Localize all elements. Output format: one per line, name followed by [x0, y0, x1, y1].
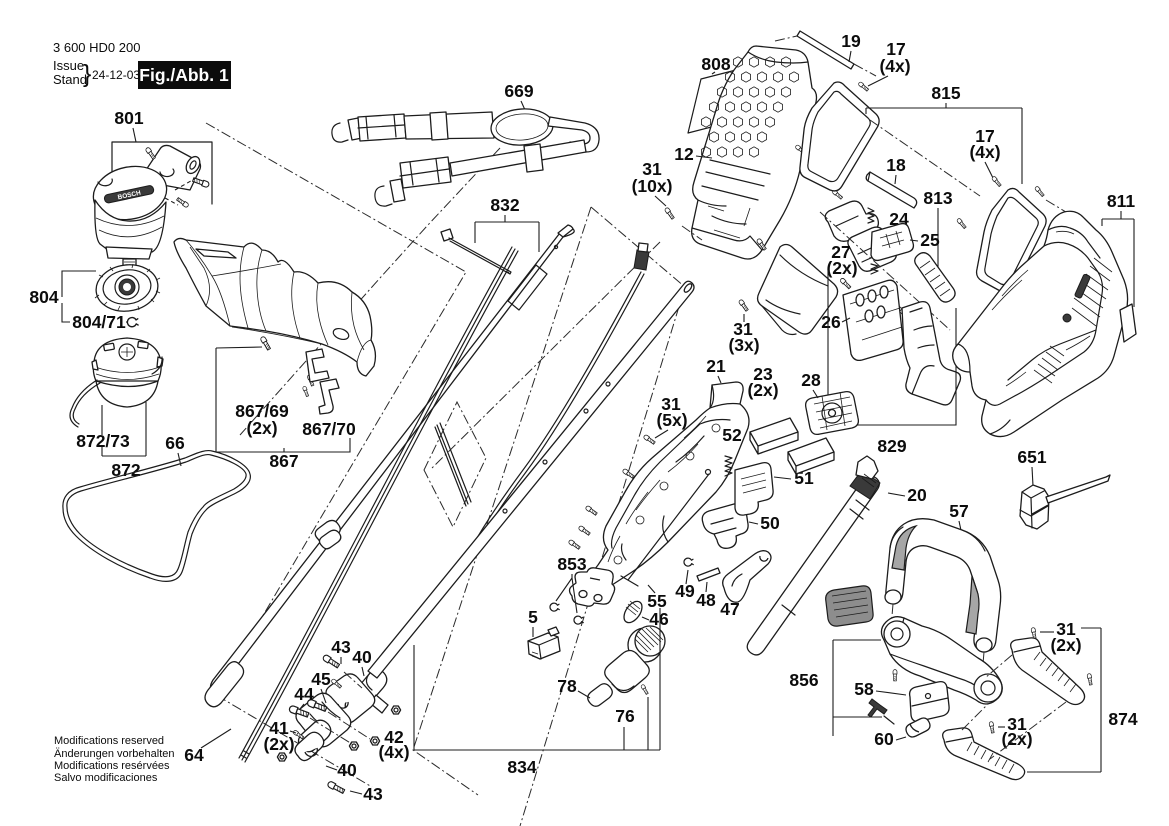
svg-text:52: 52 — [722, 425, 742, 445]
svg-text:50: 50 — [760, 513, 780, 533]
svg-text:(2x): (2x) — [263, 734, 294, 754]
svg-text:45: 45 — [311, 669, 331, 689]
svg-text:78: 78 — [557, 676, 577, 696]
svg-text:874: 874 — [1108, 709, 1137, 729]
svg-text:3 600 HD0 200: 3 600 HD0 200 — [53, 40, 140, 55]
svg-text:60: 60 — [874, 729, 894, 749]
svg-text:(5x): (5x) — [656, 410, 687, 430]
svg-text:Modifications resérvées: Modifications resérvées — [54, 760, 170, 772]
svg-text:(4x): (4x) — [378, 742, 409, 762]
svg-text:19: 19 — [841, 31, 861, 51]
svg-text:(4x): (4x) — [969, 142, 1000, 162]
svg-text:49: 49 — [675, 581, 695, 601]
svg-text:26: 26 — [821, 312, 841, 332]
svg-text:28: 28 — [801, 370, 821, 390]
svg-text:872/73: 872/73 — [76, 431, 130, 451]
svg-text:867: 867 — [269, 451, 298, 471]
svg-text:20: 20 — [907, 485, 927, 505]
svg-text:5: 5 — [528, 607, 538, 627]
svg-text:(4x): (4x) — [879, 56, 910, 76]
svg-text:18: 18 — [886, 155, 906, 175]
svg-text:Issue: Issue — [53, 58, 84, 73]
svg-text:66: 66 — [165, 433, 185, 453]
svg-text:808: 808 — [701, 54, 730, 74]
svg-text:40: 40 — [352, 647, 372, 667]
svg-text:669: 669 — [504, 81, 533, 101]
svg-text:40: 40 — [337, 760, 357, 780]
svg-text:}: } — [83, 60, 91, 88]
svg-text:58: 58 — [854, 679, 874, 699]
svg-text:48: 48 — [696, 590, 716, 610]
svg-text:21: 21 — [706, 356, 726, 376]
svg-text:(3x): (3x) — [728, 335, 759, 355]
svg-text:57: 57 — [949, 501, 968, 521]
svg-text:867/70: 867/70 — [302, 419, 356, 439]
svg-text:813: 813 — [923, 188, 952, 208]
svg-text:Fig./Abb. 1: Fig./Abb. 1 — [139, 65, 229, 85]
svg-text:55: 55 — [647, 591, 667, 611]
svg-text:Modifications reserved: Modifications reserved — [54, 735, 164, 747]
svg-text:(2x): (2x) — [747, 380, 778, 400]
svg-text:804/71: 804/71 — [72, 312, 126, 332]
svg-text:811: 811 — [1107, 191, 1135, 211]
svg-text:856: 856 — [789, 670, 818, 690]
svg-text:(2x): (2x) — [246, 418, 277, 438]
svg-text:832: 832 — [490, 195, 519, 215]
svg-text:Salvo modificaciones: Salvo modificaciones — [54, 772, 158, 784]
svg-text:815: 815 — [931, 83, 960, 103]
svg-text:829: 829 — [877, 436, 906, 456]
svg-text:12: 12 — [674, 144, 694, 164]
svg-text:(2x): (2x) — [1050, 635, 1081, 655]
svg-text:43: 43 — [331, 637, 351, 657]
svg-text:Stand: Stand — [53, 72, 87, 87]
svg-text:834: 834 — [507, 757, 536, 777]
svg-text:801: 801 — [114, 108, 143, 128]
svg-text:47: 47 — [720, 599, 739, 619]
svg-text:44: 44 — [294, 684, 314, 704]
svg-text:(2x): (2x) — [826, 258, 857, 278]
svg-text:24-12-03: 24-12-03 — [92, 68, 140, 82]
svg-text:(10x): (10x) — [632, 176, 673, 196]
svg-text:43: 43 — [363, 784, 383, 804]
svg-text:76: 76 — [615, 706, 635, 726]
svg-text:651: 651 — [1017, 447, 1046, 467]
svg-text:804: 804 — [29, 287, 58, 307]
svg-text:25: 25 — [920, 230, 940, 250]
svg-text:Änderungen vorbehalten: Änderungen vorbehalten — [54, 748, 174, 760]
svg-text:853: 853 — [557, 554, 586, 574]
